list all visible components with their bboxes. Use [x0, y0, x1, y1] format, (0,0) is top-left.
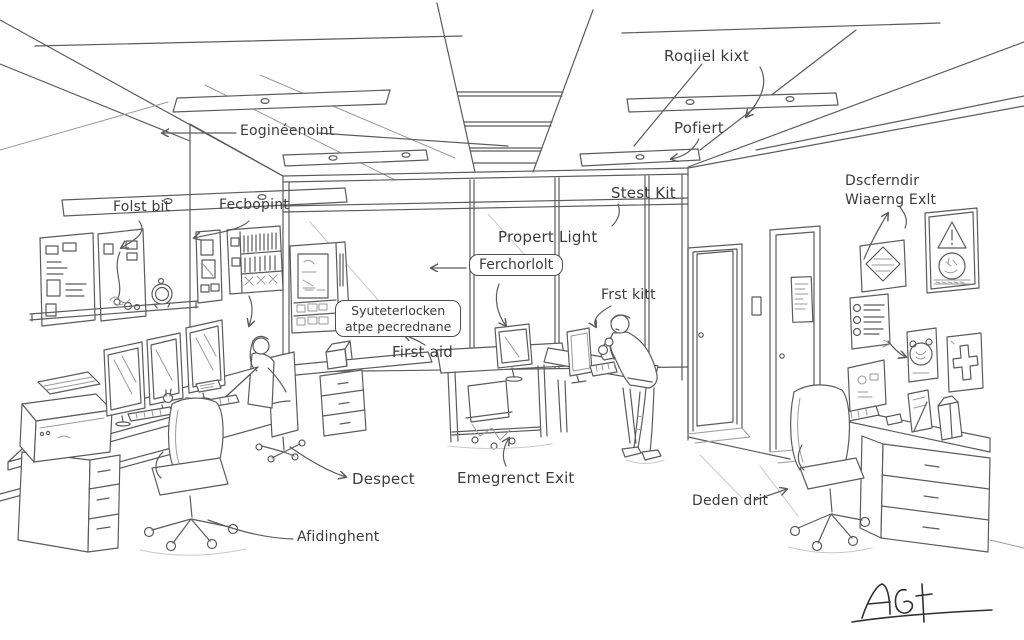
label-drawer-leader: Afidinghent — [297, 529, 379, 545]
ceiling-light-panels — [62, 90, 838, 216]
label-wall-board: Folst bit — [113, 199, 170, 215]
printer — [20, 372, 112, 462]
label-partition-tag: Ferchorlolt — [469, 254, 563, 276]
label-under-desk: Emegrenct Exit — [457, 469, 575, 487]
tucked-chair — [466, 381, 515, 449]
supply-box — [938, 396, 962, 440]
artist-signature — [852, 584, 992, 622]
label-window-top: Stest Kit — [611, 184, 676, 202]
cross-poster — [947, 333, 983, 392]
label-first-aid-cabinet-line2: atpe pecrednane — [345, 319, 451, 335]
label-ceiling-right: Roqiiel kixt — [664, 47, 749, 65]
office-sketch-drawing — [0, 0, 1024, 640]
binder-shelf-unit — [227, 226, 283, 294]
label-first-aid-cabinet-line1: Syuteterlocken — [345, 303, 451, 319]
label-window-light: Propert Light — [498, 228, 597, 246]
label-ceiling-left: Eoginéenoint — [240, 123, 334, 139]
door-left — [688, 244, 750, 443]
label-exit-sign-line1: Dscferndir — [845, 172, 936, 191]
annotation-arrows — [121, 64, 906, 539]
center-desk-monitor — [495, 324, 532, 381]
light-switch — [752, 297, 761, 315]
label-exit-sign: Dscferndir Wiaerng Exlt — [845, 172, 936, 210]
label-right-chair: Deden drit — [692, 493, 768, 509]
narrow-wall-cabinet — [196, 230, 222, 303]
electrical-warning-sign — [925, 208, 979, 293]
office-sketch-canvas: Roqiiel kixt Pofiert Eoginéenoint Folst … — [0, 0, 1024, 640]
label-wall-cabinet: Fecbopint — [219, 197, 289, 213]
hazard-diamond-sign — [860, 240, 906, 292]
mascot-poster — [907, 328, 938, 382]
ceiling-grid — [0, 3, 1024, 180]
label-first-aid: First aid — [392, 343, 453, 361]
label-front-chair: Despect — [352, 470, 415, 488]
label-standing-desk: Frst kitt — [601, 287, 656, 303]
label-first-aid-cabinet: Syuteterlocken atpe pecrednane — [335, 300, 461, 337]
checklist-poster — [850, 294, 890, 349]
left-desk-pedestal — [18, 452, 120, 552]
document-stand — [908, 390, 932, 432]
label-exit-sign-line2: Wiaerng Exlt — [845, 191, 936, 210]
label-ceiling-right-lower: Pofiert — [674, 119, 724, 137]
